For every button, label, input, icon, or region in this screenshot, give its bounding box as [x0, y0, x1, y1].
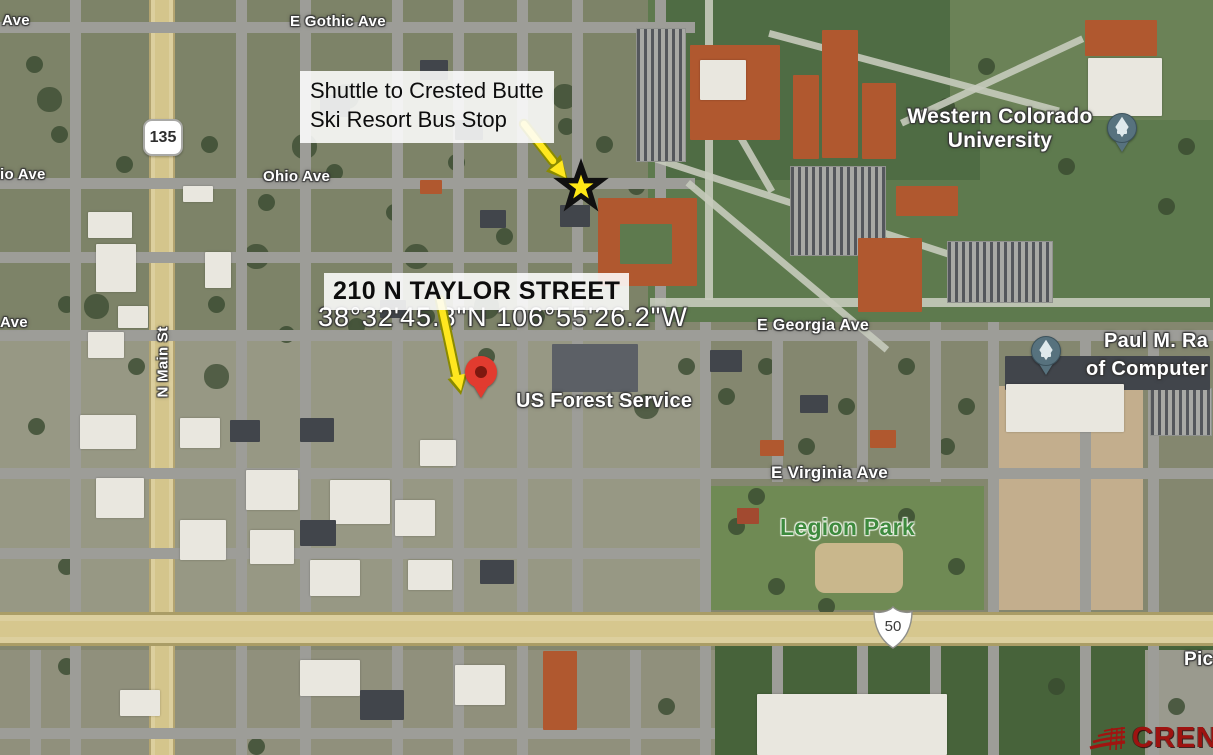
building: [1085, 20, 1157, 56]
address-title: 210 N TAYLOR STREET: [333, 277, 620, 305]
bus-stop-line1: Shuttle to Crested Butte: [310, 76, 544, 105]
building: [757, 694, 947, 755]
place-label-forest-service: US Forest Service: [516, 390, 692, 413]
street: [988, 322, 999, 755]
building: [862, 83, 896, 159]
building: [710, 350, 742, 372]
street-label-ave-partial-mid: Ave: [0, 314, 28, 331]
bus-stop-annotation: Shuttle to Crested Butte Ski Resort Bus …: [300, 71, 554, 143]
building: [96, 244, 136, 292]
university-line2: University: [907, 129, 1092, 153]
street-label-ohio-partial: io Ave: [0, 166, 46, 183]
education-pin-paul-m[interactable]: [1031, 336, 1061, 376]
building: [800, 395, 828, 413]
education-pin-university[interactable]: [1107, 113, 1137, 153]
building: [183, 186, 213, 202]
building: [455, 665, 505, 705]
building: [80, 415, 136, 449]
us-route-shield-icon: 50: [871, 604, 915, 650]
building: [360, 690, 404, 720]
cren-watermark: CREN: [1088, 722, 1213, 755]
campus-lawn: [950, 0, 1213, 120]
route-135-number: 135: [150, 129, 177, 147]
route-shield-50: 50: [871, 604, 915, 650]
building: [300, 520, 336, 546]
street: [700, 322, 711, 755]
building: [700, 60, 746, 100]
trees: [0, 0, 9, 9]
place-label-university: Western Colorado University: [907, 105, 1092, 153]
address-annotation: 210 N TAYLOR STREET: [324, 273, 629, 310]
street: [30, 650, 41, 755]
building: [552, 344, 638, 392]
building: [246, 470, 298, 510]
street: [630, 650, 641, 755]
cren-logo-icon: [1088, 725, 1128, 753]
building: [543, 651, 577, 730]
courtyard: [620, 224, 672, 264]
place-label-paul-line1: Paul M. Ra: [1104, 330, 1208, 353]
graduation-cap-icon: [1041, 353, 1051, 357]
place-label-paul-line2: of Computer: [1086, 358, 1208, 381]
place-label-pic-partial: Pic: [1184, 649, 1213, 671]
route-shield-135: 135: [143, 119, 183, 156]
street: [930, 322, 941, 482]
building: [480, 210, 506, 228]
street: [772, 322, 783, 482]
building: [118, 306, 148, 328]
building: [760, 440, 784, 456]
building: [120, 690, 160, 716]
street-label-georgia: E Georgia Ave: [757, 317, 869, 335]
building: [1006, 384, 1124, 432]
street: [857, 322, 868, 482]
university-line1: Western Colorado: [907, 105, 1092, 129]
street-label-ave-partial-top: Ave: [2, 12, 30, 29]
parking-lot: [636, 28, 686, 162]
building: [205, 252, 231, 288]
pin-center-dot: [475, 366, 487, 378]
building: [793, 75, 819, 159]
route-50-number: 50: [885, 618, 902, 635]
building: [420, 180, 442, 194]
address-location-pin[interactable]: [465, 356, 497, 398]
building: [180, 520, 226, 560]
street: [0, 728, 715, 739]
building: [395, 500, 435, 536]
street-label-main: N Main St: [155, 326, 172, 397]
street: [0, 548, 705, 559]
playground: [815, 543, 903, 593]
building: [88, 332, 124, 358]
street-label-virginia: E Virginia Ave: [771, 463, 888, 483]
cren-watermark-text: CREN: [1132, 722, 1213, 755]
parking-lot: [947, 241, 1053, 303]
parking-lot: [1150, 388, 1212, 436]
building: [858, 238, 922, 312]
graduation-cap-icon: [1117, 130, 1127, 134]
shelter: [737, 508, 759, 524]
street-label-gothic: E Gothic Ave: [290, 13, 386, 30]
building: [870, 430, 896, 448]
building: [96, 478, 144, 518]
building: [330, 480, 390, 524]
building: [896, 186, 958, 216]
building: [560, 205, 590, 227]
building: [408, 560, 452, 590]
building: [88, 212, 132, 238]
highway-50-road: [0, 612, 1213, 646]
campus-road: [650, 298, 1210, 307]
building: [480, 560, 514, 584]
building: [300, 660, 360, 696]
building: [1088, 58, 1162, 116]
building: [180, 418, 220, 448]
building: [300, 418, 334, 442]
satellite-map[interactable]: Ave E Gothic Ave Ohio Ave io Ave Ave N M…: [0, 0, 1213, 755]
building: [230, 420, 260, 442]
star-icon: [568, 174, 594, 200]
building: [420, 440, 456, 466]
street-label-ohio: Ohio Ave: [263, 168, 330, 185]
bus-stop-line2: Ski Resort Bus Stop: [310, 105, 544, 134]
place-label-legion-park: Legion Park: [780, 514, 915, 541]
street: [0, 468, 1213, 479]
building: [822, 30, 858, 158]
building: [250, 530, 294, 564]
building: [310, 560, 360, 596]
